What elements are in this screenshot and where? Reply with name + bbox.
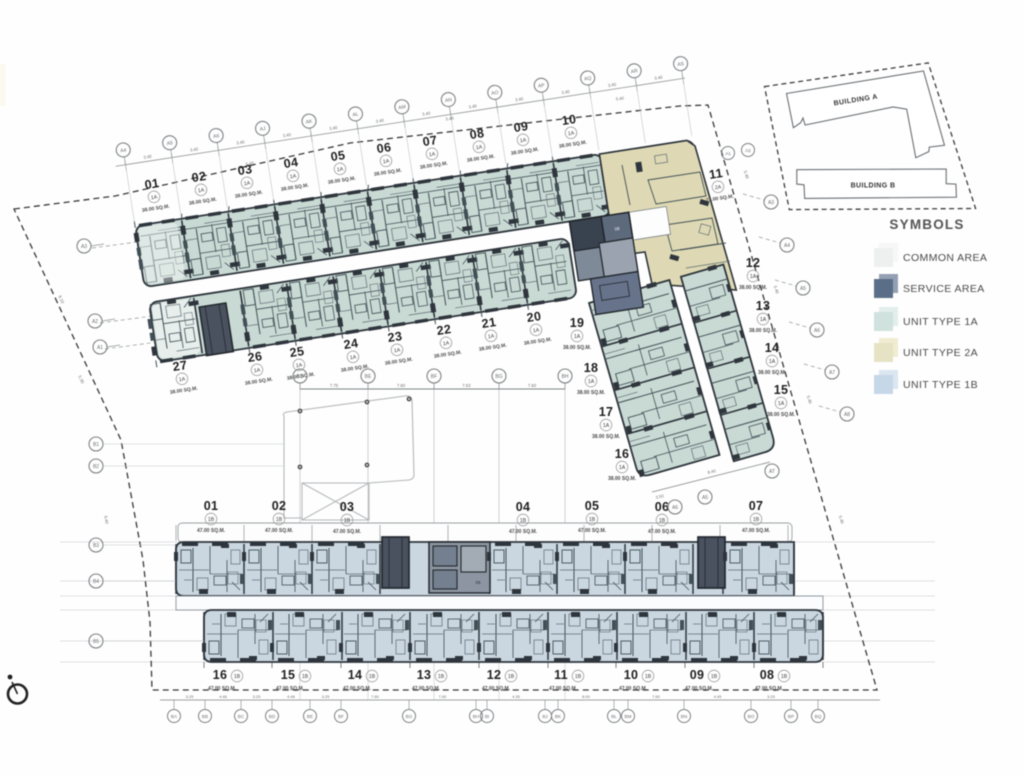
svg-text:47.00 SQ.M.: 47.00 SQ.M. [509,529,538,535]
svg-text:A4: A4 [120,147,127,154]
svg-text:15: 15 [774,383,789,397]
svg-text:47.00 SQ.M.: 47.00 SQ.M. [276,686,305,692]
svg-text:25: 25 [289,344,305,360]
svg-text:38.00 SQ.M.: 38.00 SQ.M. [563,345,592,351]
svg-text:SYMBOLS: SYMBOLS [889,217,964,232]
svg-text:UNIT TYPE 2A: UNIT TYPE 2A [903,347,978,359]
svg-text:23: 23 [387,329,403,345]
svg-text:1A: 1A [750,274,757,280]
svg-text:02: 02 [191,169,207,185]
svg-text:3.25: 3.25 [322,694,331,699]
svg-text:1B: 1B [781,674,788,680]
svg-text:14: 14 [348,668,363,682]
svg-text:07: 07 [422,133,438,149]
svg-text:1B: 1B [659,518,666,524]
svg-text:47.00 SQ.M.: 47.00 SQ.M. [197,528,226,534]
svg-text:47.00 SQ.M.: 47.00 SQ.M. [755,686,784,692]
svg-text:BD: BD [297,374,304,380]
svg-text:12: 12 [746,256,761,270]
svg-text:11: 11 [554,668,568,682]
svg-text:09: 09 [690,668,705,682]
svg-text:A7: A7 [829,370,835,376]
svg-text:COMMON AREA: COMMON AREA [903,252,987,264]
svg-text:BD: BD [269,714,276,719]
svg-text:1B: 1B [276,517,283,523]
svg-text:38.00 SQ.M.: 38.00 SQ.M. [592,434,621,440]
svg-text:B2: B2 [93,464,99,470]
svg-text:BF: BF [431,374,437,380]
svg-text:1B: 1B [575,674,582,680]
svg-text:27: 27 [172,358,188,374]
svg-text:A6: A6 [213,133,220,140]
svg-text:16: 16 [213,668,228,682]
svg-text:A5: A5 [800,286,806,292]
svg-text:SERVICE AREA: SERVICE AREA [903,283,985,295]
svg-text:14: 14 [765,341,780,355]
svg-text:04: 04 [283,155,299,171]
svg-text:7.63: 7.63 [462,383,471,388]
svg-text:03: 03 [340,500,355,514]
svg-text:AT: AT [769,469,775,475]
svg-text:1B: 1B [589,517,596,523]
svg-text:38.00 SQ.M.: 38.00 SQ.M. [739,285,768,291]
svg-text:1B: 1B [344,518,351,524]
svg-text:09: 09 [513,119,529,135]
svg-text:A3: A3 [768,200,774,206]
svg-text:BA: BA [171,714,178,719]
svg-text:1A: 1A [588,379,595,385]
svg-text:47.00 SQ.M.: 47.00 SQ.M. [742,528,771,534]
svg-text:47.00 SQ.M.: 47.00 SQ.M. [685,686,714,692]
svg-text:BC: BC [238,714,245,719]
svg-text:1B: 1B [520,518,527,524]
svg-text:BB: BB [202,714,208,719]
svg-text:3.25: 3.25 [186,694,195,699]
svg-text:BO: BO [748,714,755,719]
svg-text:AL: AL [352,111,359,118]
svg-text:38.00 SQ.M.: 38.00 SQ.M. [758,370,787,376]
svg-text:22: 22 [436,322,452,338]
svg-text:AQ: AQ [584,75,592,82]
svg-text:B1: B1 [93,442,99,448]
svg-text:AM: AM [398,104,406,111]
svg-text:20: 20 [526,309,542,325]
svg-text:5.40: 5.40 [615,95,624,101]
svg-text:1B: 1B [302,674,309,680]
svg-text:1B: 1B [369,674,376,680]
svg-text:BE: BE [307,714,313,719]
svg-text:BH: BH [562,374,569,380]
svg-text:BE: BE [365,374,372,380]
svg-text:1A: 1A [760,317,767,323]
svg-text:47.00 SQ.M.: 47.00 SQ.M. [482,686,511,692]
svg-text:A6: A6 [672,505,678,511]
svg-text:UNIT TYPE 1B: UNIT TYPE 1B [903,379,978,391]
svg-text:7.60: 7.60 [397,383,406,388]
svg-text:1B: 1B [438,674,445,680]
svg-text:A5: A5 [702,495,708,501]
svg-text:BUILDING B: BUILDING B [851,183,896,190]
svg-text:15: 15 [281,668,296,682]
svg-text:BQ: BQ [815,714,822,719]
svg-text:BJ: BJ [542,714,547,719]
svg-text:4.35: 4.35 [512,694,521,699]
svg-text:AR: AR [630,68,638,75]
svg-text:AN: AN [445,97,453,104]
svg-text:17: 17 [599,405,614,419]
svg-text:47.00 SQ.M.: 47.00 SQ.M. [412,686,441,692]
svg-text:BH: BH [473,714,479,719]
svg-text:38.00 SQ.M.: 38.00 SQ.M. [577,390,606,396]
svg-text:12: 12 [487,668,502,682]
svg-text:47.00 SQ.M.: 47.00 SQ.M. [648,529,677,535]
svg-text:38.00 SQ.M.: 38.00 SQ.M. [767,412,796,418]
svg-text:1A: 1A [778,401,785,407]
svg-text:BP: BP [788,714,794,719]
svg-text:13: 13 [756,299,771,313]
svg-text:7.60: 7.60 [439,694,448,699]
svg-text:A6: A6 [814,328,820,334]
svg-text:BF: BF [338,714,344,719]
svg-text:A4: A4 [784,243,790,249]
svg-text:04: 04 [516,500,531,514]
svg-text:1A: 1A [619,465,626,471]
svg-text:47.00 SQ.M.: 47.00 SQ.M. [619,686,648,692]
svg-text:19: 19 [570,316,585,330]
svg-text:08: 08 [760,668,775,682]
svg-text:UNIT TYPE 1A: UNIT TYPE 1A [903,316,978,328]
svg-text:06: 06 [655,500,670,514]
svg-text:47.00 SQ.M.: 47.00 SQ.M. [578,528,607,534]
svg-text:1B: 1B [645,674,652,680]
svg-text:1B: 1B [753,517,760,523]
svg-text:BM: BM [625,714,632,719]
svg-text:4.45: 4.45 [714,694,723,699]
svg-text:38.00 SQ.M.: 38.00 SQ.M. [608,476,637,482]
svg-text:A2: A2 [745,148,751,153]
svg-text:01: 01 [204,499,219,513]
svg-text:11: 11 [708,166,724,182]
svg-text:A5: A5 [166,140,173,147]
svg-text:02: 02 [272,499,287,513]
svg-text:A1: A1 [725,151,731,156]
svg-text:3.25: 3.25 [767,694,776,699]
svg-text:05: 05 [585,499,600,513]
svg-text:BL: BL [611,714,617,719]
svg-text:A2: A2 [92,319,98,325]
svg-text:4.48: 4.48 [287,694,296,699]
svg-text:13: 13 [417,668,432,682]
svg-text:B5: B5 [93,639,99,645]
svg-text:26: 26 [247,349,263,365]
svg-text:BG: BG [406,714,413,719]
svg-text:18: 18 [584,361,599,375]
svg-text:A1: A1 [97,345,103,351]
svg-text:08: 08 [469,126,485,142]
svg-text:47.00 SQ.M.: 47.00 SQ.M. [333,529,362,535]
svg-text:BN: BN [681,714,687,719]
svg-text:1B: 1B [508,674,515,680]
svg-text:B3: B3 [93,543,99,549]
svg-text:47.00 SQ.M.: 47.00 SQ.M. [208,686,237,692]
svg-text:08: 08 [475,580,481,585]
svg-text:BK: BK [555,714,562,719]
svg-text:7.60: 7.60 [652,694,661,699]
svg-text:BG: BG [495,374,502,380]
svg-text:38.00 SQ.M.: 38.00 SQ.M. [749,328,778,334]
svg-text:47.00 SQ.M.: 47.00 SQ.M. [265,528,294,534]
svg-text:7.75: 7.75 [330,383,339,388]
svg-text:47.00 SQ.M.: 47.00 SQ.M. [549,686,578,692]
svg-text:1A: 1A [769,359,776,365]
svg-text:3.25: 3.25 [253,694,262,699]
svg-text:B4: B4 [93,579,99,585]
svg-text:24: 24 [343,336,359,352]
svg-text:AO: AO [491,90,499,97]
svg-text:10: 10 [624,668,639,682]
svg-text:1A: 1A [574,334,581,340]
svg-text:1B: 1B [234,674,241,680]
svg-text:06: 06 [376,140,392,156]
svg-text:7.60: 7.60 [371,694,380,699]
svg-text:1A: 1A [603,423,610,429]
svg-text:8.00: 8.00 [582,694,591,699]
svg-text:05: 05 [330,148,346,164]
svg-text:A3: A3 [81,244,87,250]
svg-text:1B: 1B [208,517,215,523]
svg-text:10: 10 [561,112,577,128]
svg-text:47.00 SQ.M.: 47.00 SQ.M. [343,686,372,692]
svg-text:BI: BI [485,714,489,719]
svg-text:16: 16 [615,447,630,461]
svg-text:07: 07 [749,499,764,513]
svg-text:01: 01 [144,176,160,192]
svg-text:7.60: 7.60 [528,383,537,388]
svg-text:4.48: 4.48 [219,694,228,699]
svg-text:1B: 1B [711,674,718,680]
svg-text:A8: A8 [844,412,850,418]
svg-text:21: 21 [481,315,497,331]
